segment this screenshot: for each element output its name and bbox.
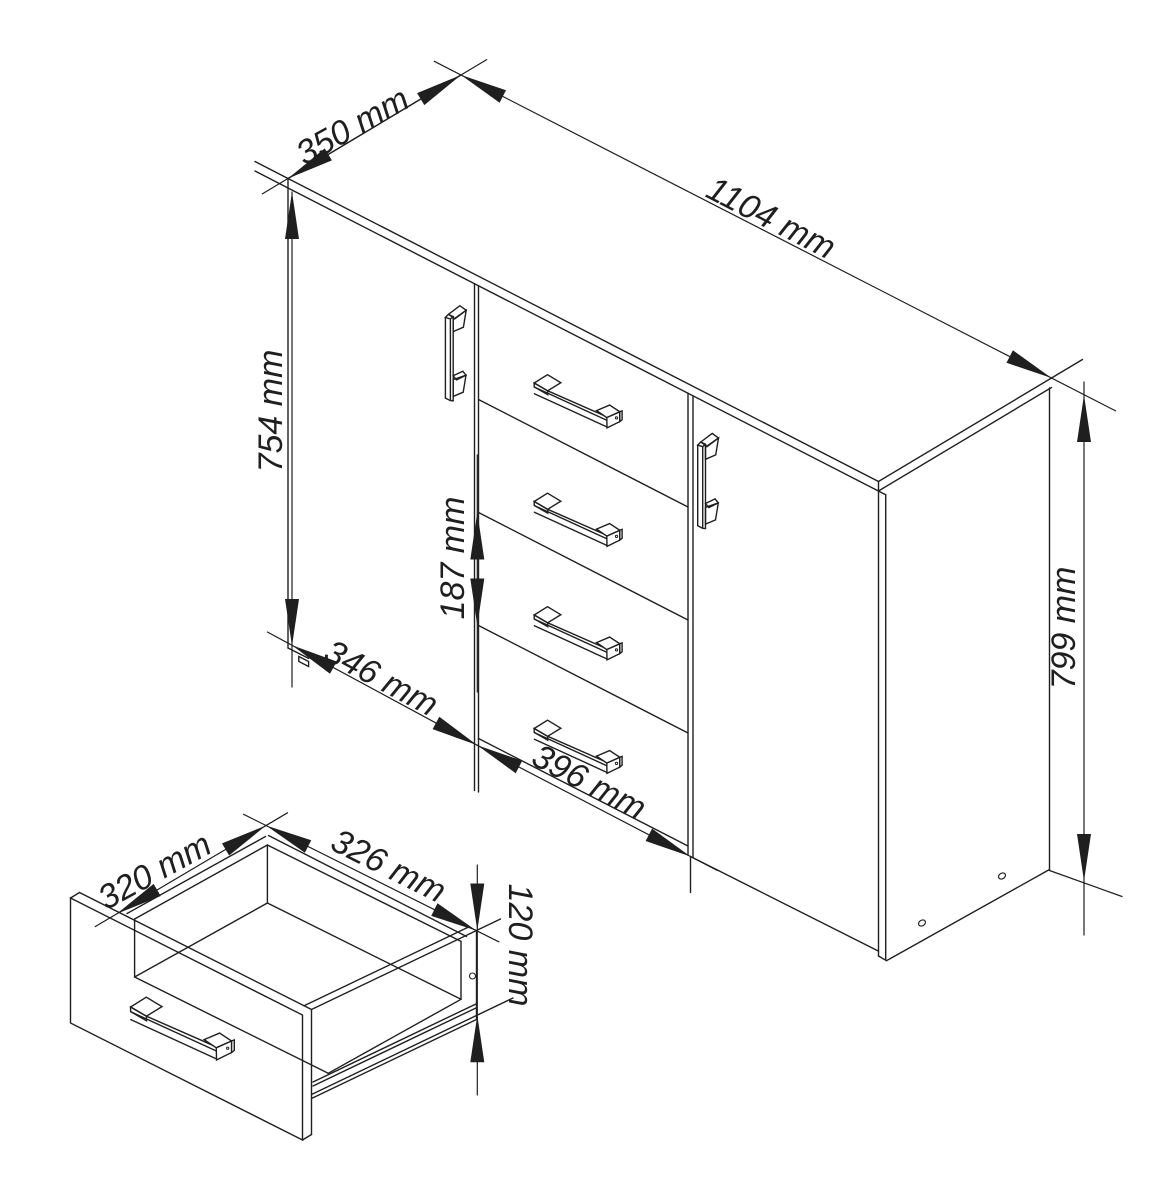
svg-text:320 mm: 320 mm xyxy=(92,825,218,917)
svg-text:350 mm: 350 mm xyxy=(290,80,416,173)
svg-text:346 mm: 346 mm xyxy=(318,632,444,724)
svg-text:187 mm: 187 mm xyxy=(434,497,472,620)
svg-text:799 mm: 799 mm xyxy=(1045,567,1083,690)
svg-text:754 mm: 754 mm xyxy=(252,350,290,473)
svg-text:120 mm: 120 mm xyxy=(501,884,539,1007)
svg-text:396 mm: 396 mm xyxy=(526,737,652,828)
svg-text:1104 mm: 1104 mm xyxy=(700,169,841,266)
